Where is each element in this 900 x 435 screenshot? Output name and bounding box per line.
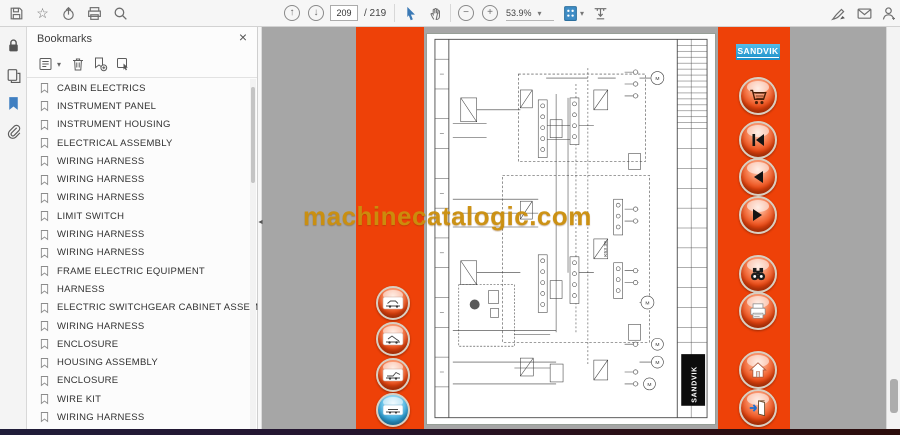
bookmark-item[interactable]: HARNESS [27,280,249,298]
bookmark-label: ELECTRIC SWITCHGEAR CABINET ASSEMBLY [57,302,276,313]
next-page-button[interactable]: ↓ [308,5,324,21]
page-number-input[interactable] [330,5,358,21]
machine-model-button-1[interactable] [376,286,410,320]
close-icon[interactable]: × [239,29,247,45]
bookmark-icon [40,137,49,149]
search-icon[interactable] [112,5,129,22]
bookmark-icon [40,320,49,332]
save-icon[interactable] [8,5,25,22]
bookmark-label: WIRING HARNESS [57,412,144,423]
home-button[interactable] [739,351,777,389]
bookmark-label: HARNESS [57,284,105,295]
bookmarks-scrollbar[interactable] [250,79,256,429]
chevron-down-icon[interactable]: ▾ [580,9,584,18]
bookmark-label: ENCLOSURE [57,375,118,386]
search-binoculars-button[interactable] [739,255,777,293]
first-page-button[interactable] [739,121,777,159]
bookmark-icon [40,393,49,405]
next-button[interactable] [739,196,777,234]
previous-button[interactable] [739,158,777,196]
account-icon[interactable] [880,5,897,22]
bookmark-item[interactable]: WIRING HARNESS [27,170,249,188]
machine-model-button-2[interactable] [376,322,410,356]
bookmark-item[interactable]: INSTRUMENT PANEL [27,97,249,115]
bookmarks-list: CABIN ELECTRICS INSTRUMENT PANEL INSTRUM… [27,79,249,427]
cart-button[interactable] [739,77,777,115]
bookmark-label: WIRING HARNESS [57,321,144,332]
bookmark-icon [40,283,49,295]
zoom-out-button[interactable]: − [458,5,474,21]
panel-splitter[interactable]: ◄ [258,27,262,429]
pdf-viewer-window: ☆ ↑ ↓ / 219 − + 53.9%▾ ▾ [0,0,900,435]
bookmarks-panel-icon[interactable] [5,95,22,112]
lock-icon[interactable] [5,37,22,54]
left-orange-sidebar [356,27,424,429]
document-viewer: ◄ [258,27,900,429]
delete-bookmark-icon[interactable] [70,56,86,72]
zoom-level-dropdown[interactable]: 53.9%▾ [506,5,554,21]
bookmarks-panel-title: Bookmarks [37,33,92,45]
bookmark-item[interactable]: WIRING HARNESS [27,244,249,262]
bookmark-item[interactable]: WIRE KIT [27,390,249,408]
bookmark-item[interactable]: LIMIT SWITCH [27,207,249,225]
bookmark-icon [40,302,49,314]
bookmark-icon [40,247,49,259]
bookmark-label: WIRING HARNESS [57,247,144,258]
bookmark-icon [40,338,49,350]
bookmark-icon [40,265,49,277]
zoom-in-button[interactable]: + [482,5,498,21]
bookmark-item[interactable]: WIRING HARNESS [27,225,249,243]
bookmark-icon [40,192,49,204]
toolbar: ☆ ↑ ↓ / 219 − + 53.9%▾ ▾ [0,0,900,27]
bookmark-icon [40,210,49,222]
exit-button[interactable] [739,389,777,427]
attachments-icon[interactable] [5,123,22,140]
star-icon[interactable]: ☆ [34,5,51,22]
bookmark-label: CABIN ELECTRICS [57,83,146,94]
scrolling-mode-icon[interactable] [592,5,609,22]
bookmark-item[interactable]: CABIN ELECTRICS [27,79,249,97]
bookmark-label: WIRING HARNESS [57,192,144,203]
bookmark-item[interactable]: INSTRUMENT HOUSING [27,116,249,134]
bookmark-item[interactable]: HOUSING ASSEMBLY [27,353,249,371]
page-view-icon[interactable] [562,5,579,22]
bookmark-label: ENCLOSURE [57,339,118,350]
bookmark-icon [40,357,49,369]
svg-text:M: M [655,342,659,348]
bottom-edge-bar [0,429,900,435]
bookmark-label: INSTRUMENT PANEL [57,101,156,112]
left-navigation-rail [0,27,27,429]
shaded-component [470,300,480,310]
bookmark-label: LIMIT SWITCH [57,211,124,222]
machine-model-button-blue[interactable] [376,393,410,427]
new-bookmark-icon[interactable] [92,56,108,72]
bookmark-label: WIRING HARNESS [57,229,144,240]
bookmark-item[interactable]: WIRING HARNESS [27,408,249,426]
bookmark-label: HOUSING ASSEMBLY [57,357,158,368]
divider [27,77,257,78]
bookmarks-panel: Bookmarks × ▾ CABIN ELECTRICS [27,27,258,429]
sandvik-page-logo: SANDVIK [692,366,699,403]
bookmark-label: WIRING HARNESS [57,174,144,185]
bookmark-item[interactable]: WIRING HARNESS [27,317,249,335]
bookmark-icon [40,119,49,131]
pdf-page[interactable]: SANDVIK [426,33,716,425]
collapse-panel-icon[interactable]: ◄ [258,219,264,226]
bookmark-label: ELECTRICAL ASSEMBLY [57,138,173,149]
viewer-scrollbar[interactable] [886,27,900,429]
bookmark-icon [40,411,49,423]
bookmark-options-icon[interactable] [38,56,54,72]
svg-text:M: M [655,76,659,82]
chevron-down-icon: ▾ [538,9,542,18]
print-icon[interactable] [86,5,103,22]
bookmark-icon [40,82,49,94]
toolbar-separator [394,4,395,22]
zoom-level-value: 53.9% [506,8,532,18]
page-thumbnails-icon[interactable] [5,67,22,84]
email-icon[interactable] [856,5,873,22]
bookmark-icon [40,229,49,241]
bookmark-item[interactable]: FRAME ELECTRIC EQUIPMENT [27,262,249,280]
page-total-label: / 219 [364,8,386,19]
bookmark-icon [40,100,49,112]
upload-icon[interactable] [60,5,77,22]
goto-current-bookmark-icon[interactable] [115,56,131,72]
scrollbar-thumb[interactable] [890,379,898,413]
fill-sign-icon[interactable] [830,5,847,22]
bookmark-item[interactable]: ELECTRICAL ASSEMBLY [27,134,249,152]
svg-text:M: M [647,382,651,388]
bookmark-label: WIRE KIT [57,394,101,405]
chevron-down-icon: ▾ [57,60,61,69]
svg-text:M: M [645,300,649,306]
bookmark-label: WIRING HARNESS [57,156,144,167]
previous-page-button[interactable]: ↑ [284,5,300,21]
bookmark-icon [40,174,49,186]
machine-model-button-3[interactable] [376,358,410,392]
hand-tool-icon[interactable] [428,5,445,22]
sandvik-logo-text: SANDVIK [737,46,778,58]
bookmark-item[interactable]: ENCLOSURE [27,372,249,390]
bookmark-icon [40,155,49,167]
svg-text:M: M [655,360,659,366]
bookmark-item[interactable]: ENCLOSURE [27,335,249,353]
bookmark-label: INSTRUMENT HOUSING [57,119,171,130]
bookmark-icon [40,375,49,387]
scrollbar-thumb[interactable] [251,87,255,183]
diagram-label: K53.39 [603,241,609,257]
bookmark-item[interactable]: WIRING HARNESS [27,152,249,170]
select-tool-icon[interactable] [402,5,419,22]
bookmark-label: FRAME ELECTRIC EQUIPMENT [57,266,205,277]
sandvik-logo[interactable]: SANDVIK [736,44,780,60]
print-button[interactable] [739,292,777,330]
wiring-diagram: SANDVIK [427,34,715,424]
bookmark-item[interactable]: ELECTRIC SWITCHGEAR CABINET ASSEMBLY [27,299,249,317]
bookmark-item[interactable]: WIRING HARNESS [27,189,249,207]
toolbar-separator [450,4,451,22]
